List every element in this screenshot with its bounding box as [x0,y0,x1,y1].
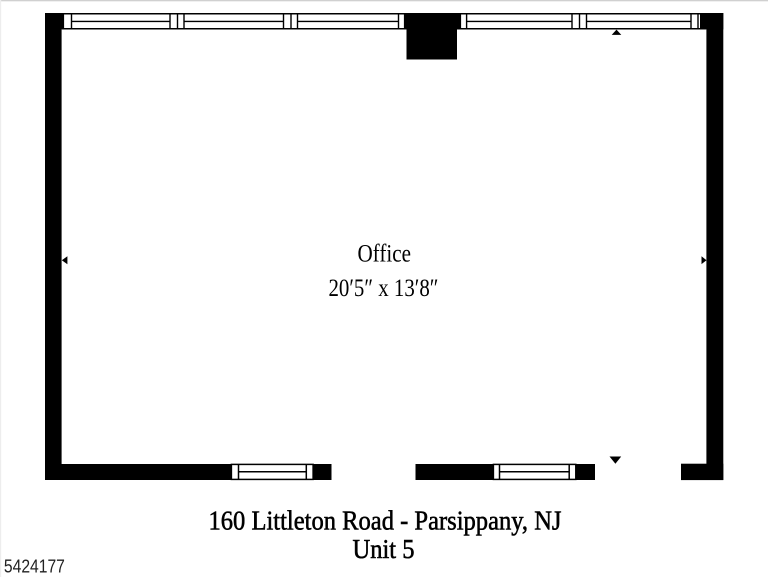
svg-text:20′5″ x 13′8″: 20′5″ x 13′8″ [329,273,439,302]
svg-text:5424177: 5424177 [4,557,65,577]
svg-text:Office: Office [357,241,411,268]
svg-text:Unit 5: Unit 5 [353,534,415,564]
svg-text:160 Littleton Road - Parsippan: 160 Littleton Road - Parsippany, NJ [209,506,562,536]
